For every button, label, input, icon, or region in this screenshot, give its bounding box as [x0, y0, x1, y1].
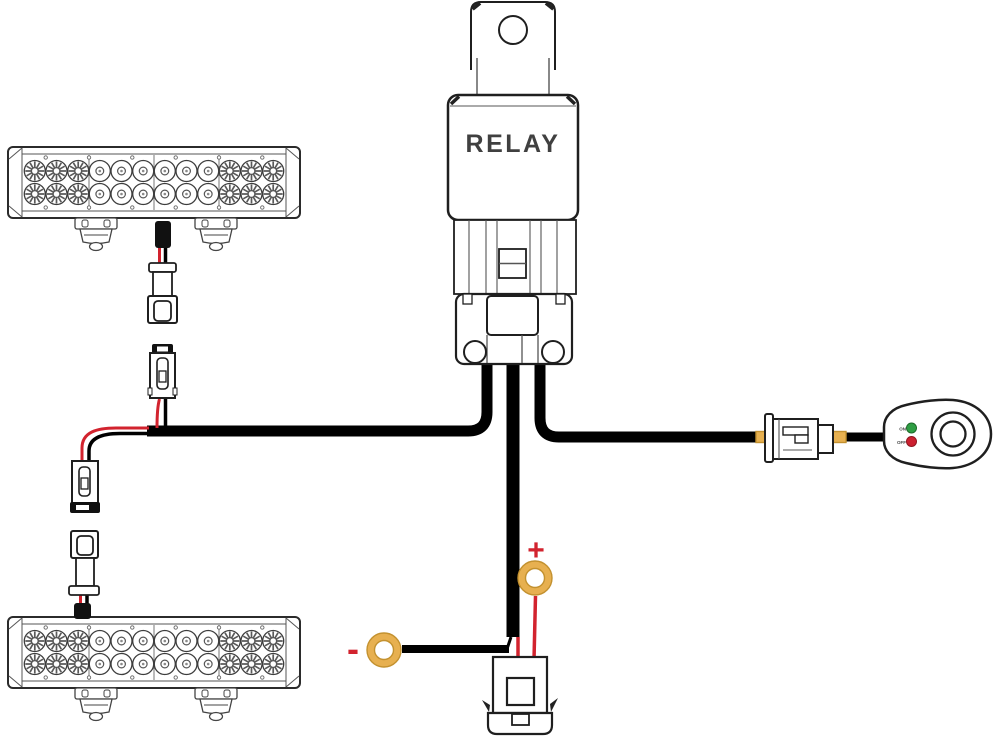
negative-symbol: - — [347, 628, 359, 669]
lightbar-plug-top — [148, 221, 177, 323]
relay-mounting-tab — [471, 2, 555, 96]
negative-ring-terminal: - — [347, 628, 401, 669]
mounting-hole-icon — [499, 16, 527, 44]
switch-on-label: ON — [899, 427, 906, 432]
wire-relay-to-lightbars — [147, 360, 487, 431]
gold-contact-icon — [832, 432, 846, 443]
fuse-window-icon — [507, 678, 534, 705]
switch-led-green-icon — [907, 423, 917, 433]
wiring-diagram: RELAY ON OFF — [0, 0, 1000, 741]
switch-led-red-icon — [907, 437, 917, 447]
led-light-bar-top — [8, 147, 300, 251]
relay-pins — [454, 220, 576, 294]
led-light-bar-bottom — [8, 617, 300, 721]
wire-positive-to-fuse — [534, 596, 536, 660]
fuse-holder — [482, 657, 558, 734]
harness-connector-bottom — [70, 461, 100, 513]
positive-ring-terminal: + — [518, 534, 552, 595]
relay: RELAY — [448, 2, 578, 364]
wire-boot-icon — [155, 221, 171, 248]
lightbar-plug-bottom — [69, 531, 99, 619]
inline-switch-connector — [756, 414, 846, 462]
wiring-diagram-page: RELAY ON OFF — [0, 0, 1000, 741]
power-switch: ON OFF — [884, 400, 991, 469]
wire-boot-icon — [74, 603, 91, 619]
relay-socket — [456, 294, 572, 364]
wire-relay-to-switch — [540, 360, 760, 437]
switch-off-label: OFF — [897, 440, 906, 445]
harness-connector-top — [148, 344, 177, 398]
relay-label: RELAY — [466, 130, 561, 158]
